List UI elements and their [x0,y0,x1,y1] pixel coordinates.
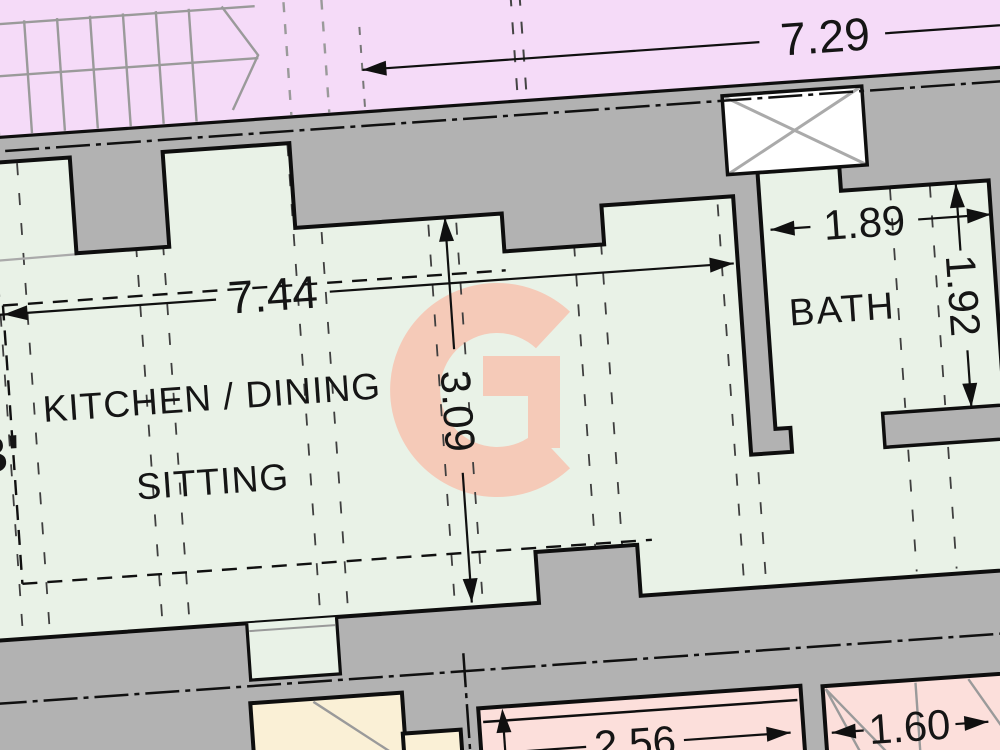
dimension-text: 7.44 [226,266,319,324]
dimension-text: 1.92 [937,253,990,338]
room-label-bath: BATH [788,285,897,334]
floor-plan-page: 7.29 7.44 3.09 1.89 1.92 [0,0,1000,750]
dimension-text: 1.60 [867,700,952,750]
dimension-text: 2.56 [593,717,678,750]
dimension-text: 3.09 [432,369,485,454]
door-opening [247,617,341,680]
dimension-text: 7.29 [779,7,872,65]
dimension-text: 1.89 [822,196,907,249]
floor-plan-drawing: 7.29 7.44 3.09 1.89 1.92 [0,0,1000,750]
